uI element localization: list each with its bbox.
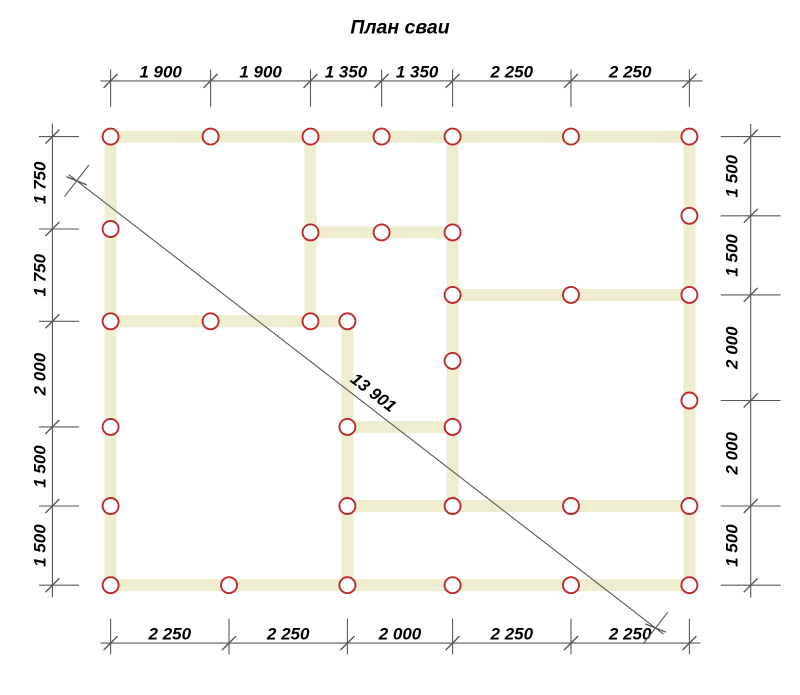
svg-text:1 500: 1 500 [723,154,742,197]
svg-text:1 750: 1 750 [31,161,50,204]
svg-text:1 350: 1 350 [396,63,439,82]
svg-text:1 900: 1 900 [139,63,182,82]
svg-text:1 500: 1 500 [723,524,742,567]
svg-text:План сваи: План сваи [350,17,449,39]
svg-text:2 250: 2 250 [266,625,310,644]
svg-text:2 250: 2 250 [490,625,534,644]
svg-text:2 250: 2 250 [490,63,534,82]
svg-text:1 900: 1 900 [239,63,282,82]
svg-text:1 500: 1 500 [31,524,50,567]
svg-text:2 000: 2 000 [31,352,50,396]
svg-text:1 500: 1 500 [723,234,742,277]
svg-text:2 250: 2 250 [608,63,652,82]
svg-text:1 500: 1 500 [31,445,50,488]
svg-text:1 350: 1 350 [325,63,368,82]
svg-text:2 000: 2 000 [723,431,742,475]
svg-text:2 000: 2 000 [723,326,742,370]
svg-text:2 250: 2 250 [148,625,192,644]
svg-text:1 750: 1 750 [31,253,50,296]
svg-text:2 000: 2 000 [378,625,422,644]
